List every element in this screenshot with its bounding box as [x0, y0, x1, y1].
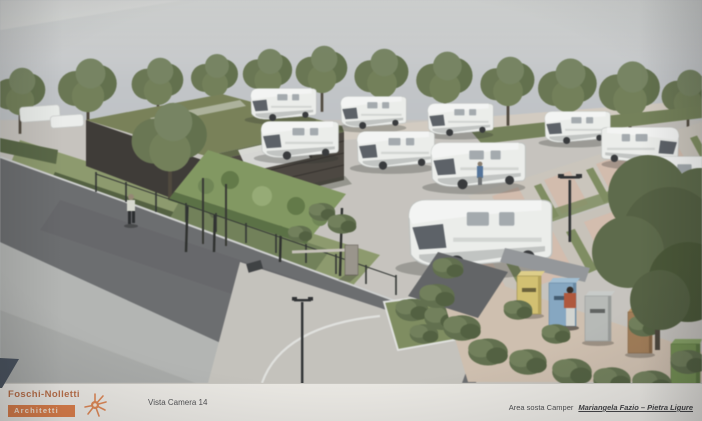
project-prefix: Area sosta Camper — [509, 403, 574, 412]
corner-shadow-triangle — [0, 355, 26, 393]
project-name: Mariangela Fazio – Pietra Ligure — [578, 403, 693, 412]
photo-of-rendering: Foschi-Nolletti Architetti Vista Camera … — [0, 0, 702, 421]
project-title: Area sosta CamperMariangela Fazio – Piet… — [509, 403, 693, 412]
camper — [350, 132, 435, 174]
view-label: Vista Camera 14 — [148, 398, 207, 407]
camper — [254, 122, 339, 164]
camper — [539, 112, 611, 148]
firm-logo: Foschi-Nolletti Architetti — [8, 390, 108, 418]
firm-logo-text: Foschi-Nolletti Architetti — [8, 390, 80, 418]
camper — [245, 89, 317, 125]
sun-logo-icon — [82, 392, 108, 418]
rendering-scene — [0, 0, 702, 421]
shrub — [288, 226, 312, 243]
camper — [422, 143, 525, 195]
bin-gray — [582, 291, 615, 346]
title-block: Foschi-Nolletti Architetti Vista Camera … — [0, 383, 702, 421]
camper — [335, 97, 407, 133]
firm-subtitle: Architetti — [8, 405, 75, 417]
shrub — [328, 214, 357, 234]
